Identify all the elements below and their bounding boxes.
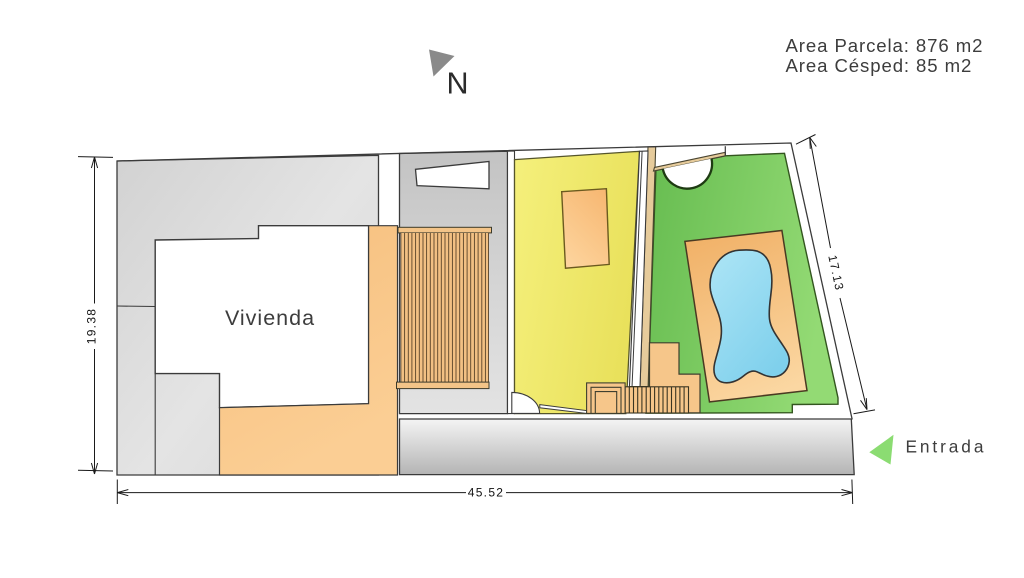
svg-text:17.13: 17.13	[825, 254, 846, 293]
svg-text:N: N	[447, 67, 469, 101]
svg-text:Vivienda: Vivienda	[225, 306, 315, 330]
svg-text:Area Césped: 85 m2: Area Césped: 85 m2	[786, 55, 973, 76]
svg-text:19.38: 19.38	[85, 308, 99, 345]
svg-text:Entrada: Entrada	[906, 436, 987, 456]
svg-text:Area Parcela: 876 m2: Area Parcela: 876 m2	[786, 35, 984, 56]
svg-text:45.52: 45.52	[468, 485, 505, 499]
